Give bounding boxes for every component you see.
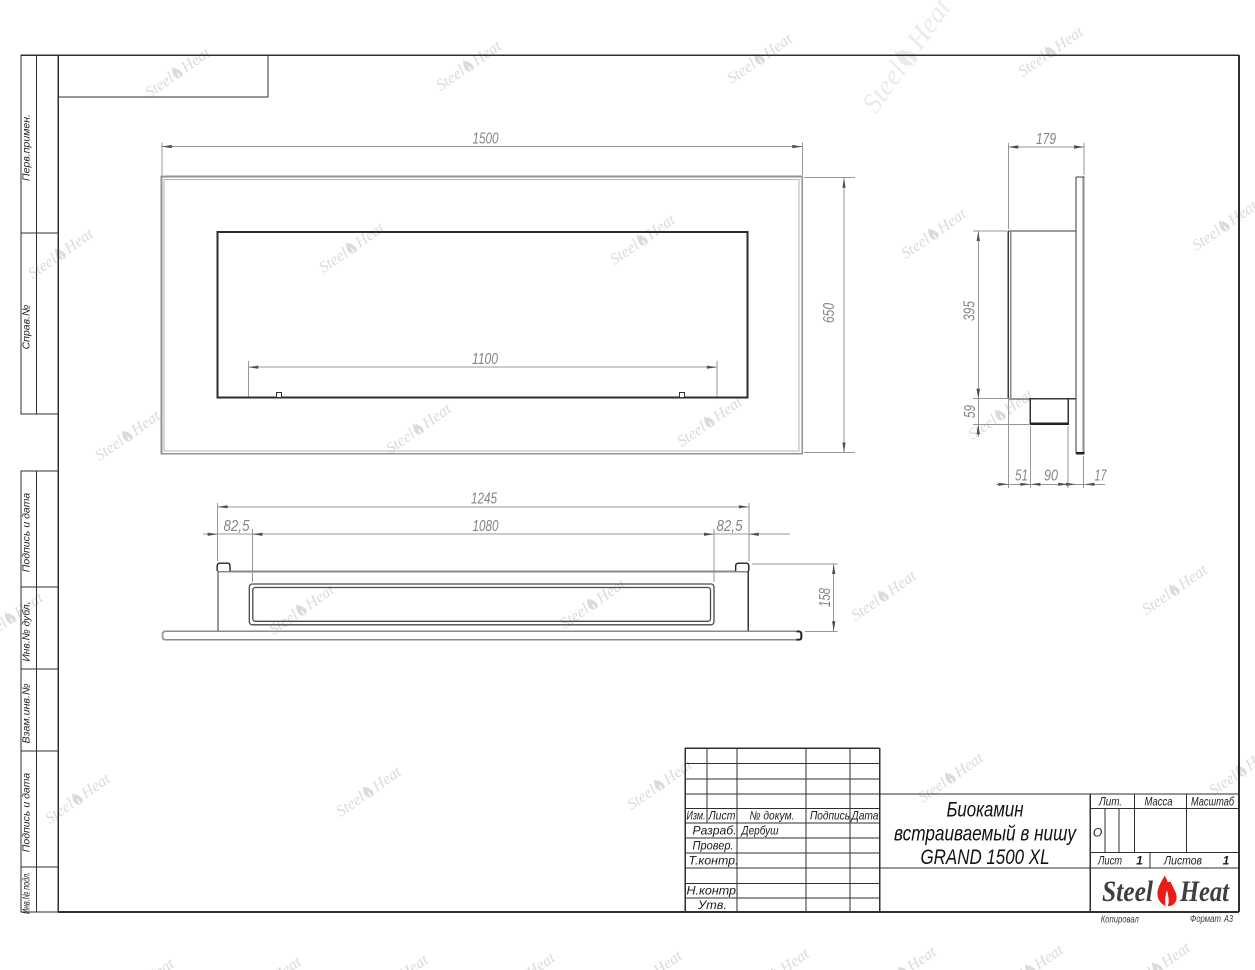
svg-text:Heat: Heat xyxy=(642,211,679,244)
svg-text:Steel: Steel xyxy=(433,62,469,94)
svg-text:Steel: Steel xyxy=(674,418,710,450)
svg-text:Биокамин: Биокамин xyxy=(947,799,1024,822)
svg-text:Н.контр.: Н.контр. xyxy=(687,884,740,898)
svg-text:Т.контр.: Т.контр. xyxy=(689,854,739,868)
svg-text:Steel: Steel xyxy=(92,432,128,464)
svg-text:Heat: Heat xyxy=(903,943,940,970)
svg-text:Heat: Heat xyxy=(759,30,796,63)
svg-text:О: О xyxy=(1093,826,1102,840)
svg-text:Steel: Steel xyxy=(557,600,593,632)
svg-text:Steel: Steel xyxy=(898,230,934,262)
svg-text:1080: 1080 xyxy=(473,518,499,535)
svg-text:Формат: Формат xyxy=(1190,913,1221,925)
svg-text:90: 90 xyxy=(1044,468,1058,485)
svg-text:Перв.примен.: Перв.примен. xyxy=(21,114,33,181)
svg-text:Heat: Heat xyxy=(1174,561,1211,594)
svg-text:Инв.№ подл.: Инв.№ подл. xyxy=(21,872,33,914)
svg-text:Steel: Steel xyxy=(724,55,760,87)
svg-text:Heat: Heat xyxy=(1000,386,1037,419)
svg-text:650: 650 xyxy=(821,303,838,323)
svg-text:Подпись: Подпись xyxy=(810,809,850,823)
svg-text:Heat: Heat xyxy=(950,749,987,782)
svg-text:59: 59 xyxy=(962,405,979,418)
svg-text:Steel: Steel xyxy=(266,606,302,638)
svg-text:Дербуш: Дербуш xyxy=(740,824,779,838)
svg-text:17: 17 xyxy=(1095,468,1108,485)
svg-text:Heat: Heat xyxy=(933,205,970,238)
svg-text:Heat: Heat xyxy=(351,219,388,252)
svg-text:Steel: Steel xyxy=(316,244,352,276)
svg-text:Heat: Heat xyxy=(1030,941,1067,970)
svg-text:Steel: Steel xyxy=(856,56,913,119)
svg-text:Heat: Heat xyxy=(60,225,97,258)
svg-text:Heat: Heat xyxy=(368,763,405,796)
svg-text:179: 179 xyxy=(1036,131,1056,148)
svg-text:82,5: 82,5 xyxy=(224,518,250,535)
svg-text:№ докум.: № докум. xyxy=(750,809,795,823)
svg-text:Лит.: Лит. xyxy=(1098,795,1122,809)
svg-text:Инв.№ дубл.: Инв.№ дубл. xyxy=(21,602,33,662)
svg-text:Изм.: Изм. xyxy=(687,809,706,823)
svg-text:Листов: Листов xyxy=(1163,854,1202,868)
svg-text:Steel: Steel xyxy=(333,788,369,820)
svg-text:Steel: Steel xyxy=(1249,962,1255,970)
svg-text:Справ.№: Справ.№ xyxy=(21,305,33,350)
svg-text:Steel: Steel xyxy=(1139,586,1175,618)
svg-text:1245: 1245 xyxy=(471,491,497,508)
svg-text:Подпись и дата: Подпись и дата xyxy=(21,773,33,853)
svg-text:Heat: Heat xyxy=(127,407,164,440)
svg-text:Heat: Heat xyxy=(900,0,958,56)
svg-text:1100: 1100 xyxy=(472,351,498,368)
svg-text:Steel: Steel xyxy=(1102,875,1154,908)
svg-text:GRAND 1500 XL: GRAND 1500 XL xyxy=(921,846,1050,869)
svg-text:Steel: Steel xyxy=(25,250,61,282)
svg-text:Подпись и дата: Подпись и дата xyxy=(21,493,33,573)
svg-text:Утв.: Утв. xyxy=(697,898,727,912)
svg-text:Heat: Heat xyxy=(1157,939,1194,970)
svg-text:Heat: Heat xyxy=(268,953,305,970)
svg-text:Heat: Heat xyxy=(659,756,696,789)
svg-text:Heat: Heat xyxy=(1179,875,1230,908)
svg-text:1500: 1500 xyxy=(473,131,499,148)
svg-text:Steel: Steel xyxy=(1015,48,1051,80)
svg-text:Heat: Heat xyxy=(883,567,920,600)
svg-text:Дата: Дата xyxy=(850,809,879,823)
svg-text:Копировал: Копировал xyxy=(1101,914,1139,926)
svg-text:Heat: Heat xyxy=(301,581,338,614)
svg-text:А3: А3 xyxy=(1223,913,1233,925)
svg-text:Steel: Steel xyxy=(607,236,643,268)
svg-text:82,5: 82,5 xyxy=(717,518,743,535)
svg-text:Steel: Steel xyxy=(848,592,884,624)
svg-text:Heat: Heat xyxy=(395,951,432,970)
svg-text:Steel: Steel xyxy=(42,795,78,827)
svg-text:Разраб.: Разраб. xyxy=(693,824,737,838)
svg-text:Steel: Steel xyxy=(1189,222,1225,254)
svg-text:Heat: Heat xyxy=(141,955,178,970)
svg-text:Heat: Heat xyxy=(522,949,559,970)
svg-text:Лист: Лист xyxy=(1097,854,1122,868)
svg-text:Провер.: Провер. xyxy=(693,839,734,853)
svg-text:51: 51 xyxy=(1015,468,1028,485)
svg-text:Heat: Heat xyxy=(1050,23,1087,56)
svg-text:Heat: Heat xyxy=(468,37,505,70)
svg-text:Heat: Heat xyxy=(592,575,629,608)
svg-text:Взам.инв.№: Взам.инв.№ xyxy=(21,684,33,744)
svg-text:Steel: Steel xyxy=(383,425,419,457)
svg-text:395: 395 xyxy=(962,301,979,321)
svg-text:встраиваемый в нишу: встраиваемый в нишу xyxy=(894,823,1077,846)
svg-text:Heat: Heat xyxy=(776,945,813,970)
svg-text:Heat: Heat xyxy=(418,400,455,433)
svg-text:Heat: Heat xyxy=(177,44,214,77)
svg-text:Масштаб: Масштаб xyxy=(1191,795,1235,809)
svg-text:Лист: Лист xyxy=(708,809,736,823)
svg-text:158: 158 xyxy=(817,588,834,607)
svg-text:Масса: Масса xyxy=(1145,795,1173,809)
svg-text:Heat: Heat xyxy=(77,770,114,803)
svg-text:1: 1 xyxy=(1223,854,1230,868)
svg-text:Steel: Steel xyxy=(624,781,660,813)
svg-text:Heat: Heat xyxy=(649,947,686,970)
svg-text:Steel: Steel xyxy=(915,774,951,806)
svg-text:1: 1 xyxy=(1136,854,1143,868)
